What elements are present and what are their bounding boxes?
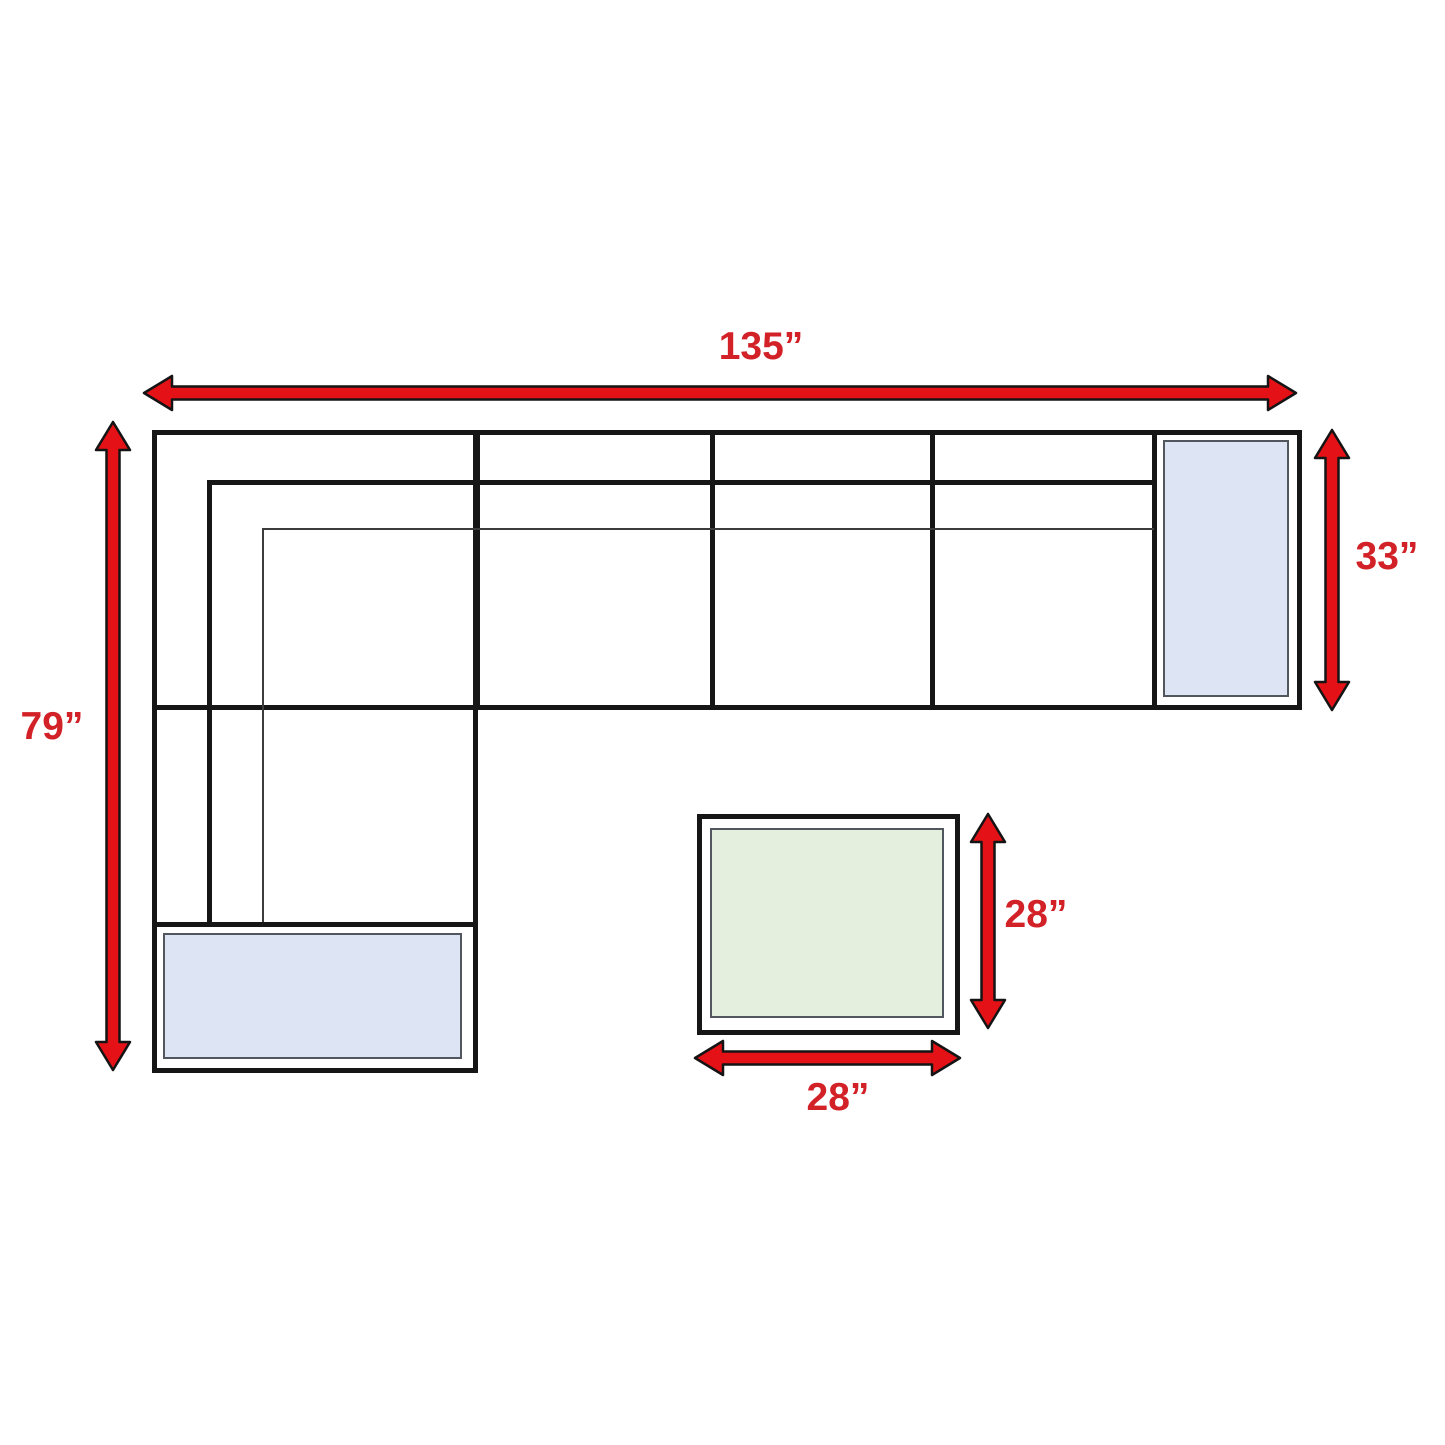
dimension-label-ottoman-depth: 28” (1005, 893, 1068, 937)
width-arrow-icon (142, 373, 1298, 413)
right-end-divider (1152, 430, 1157, 710)
right-end-pillow (1163, 440, 1289, 697)
chaise-front-line (152, 922, 478, 927)
right-end-depth-arrow-icon (1312, 428, 1352, 712)
chaise-cushion-line (262, 529, 264, 922)
ottoman-depth-arrow-icon (968, 812, 1008, 1030)
back-cushion-line (262, 528, 1154, 530)
seat-divider-3 (930, 430, 935, 710)
dimension-label-ottoman-width: 28” (807, 1076, 870, 1120)
seat-divider-1 (475, 430, 480, 710)
chaise-pillow (163, 933, 462, 1059)
ottoman-width-arrow-icon (693, 1038, 962, 1078)
dimension-label-sofa-width: 135” (719, 325, 804, 369)
dimension-label-sofa-depth: 79” (21, 705, 84, 749)
sectional-dimension-diagram: 135” 79” 33” 28” 28” (0, 0, 1445, 1445)
dimension-label-right-end-depth: 33” (1356, 535, 1419, 579)
backrest-line (207, 480, 1157, 485)
depth-arrow-icon (93, 420, 133, 1072)
chaise-arm-line (207, 480, 212, 927)
ottoman-top (710, 828, 944, 1018)
seat-divider-2 (710, 430, 715, 710)
